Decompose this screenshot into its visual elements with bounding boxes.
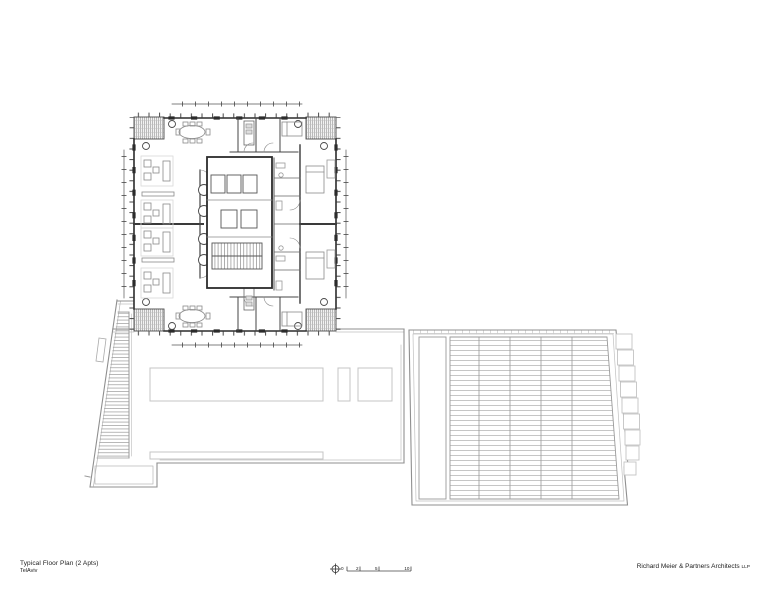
exterior-stair (97, 312, 132, 458)
terrace-bottom-right (306, 309, 336, 331)
tower-plan (122, 102, 349, 348)
wardrobe (327, 160, 335, 178)
scale-label-2: 2 (356, 566, 359, 571)
scale-label-10: 10 (404, 566, 410, 571)
scale-label-0: 0 (341, 566, 344, 571)
firm-name: Richard Meier & Partners Architects LLP (637, 563, 750, 570)
title-block: Typical Floor Plan (2 Apts) TelAviv (20, 560, 99, 575)
bed (306, 252, 324, 279)
drawing-sheet: 0 2 5 10 Typical Floor Plan (2 Apts) Tel… (0, 0, 780, 603)
wardrobe (327, 250, 335, 268)
console-table (142, 192, 174, 196)
dining-table-upper (176, 122, 210, 143)
scale-bar-group: 0 2 5 10 (330, 564, 411, 575)
roof-corridor-strip (419, 337, 446, 499)
bath-fixtures (276, 163, 285, 290)
roof-edge-cells (413, 331, 614, 335)
seating-group (141, 268, 173, 298)
terrace-top-left (134, 117, 164, 139)
console-table (142, 258, 174, 262)
service-core (207, 157, 272, 288)
podium-right-section (409, 330, 640, 505)
seating-group (141, 156, 173, 186)
seating-group (141, 228, 173, 256)
bed (306, 166, 324, 193)
sheet-title: Typical Floor Plan (2 Apts) (20, 560, 99, 568)
terrace-top-right (306, 117, 336, 139)
north-icon (330, 564, 341, 575)
scale-label-5: 5 (375, 566, 378, 571)
firm-name-text: Richard Meier & Partners Architects (637, 563, 740, 570)
core-stair (212, 243, 262, 269)
floor-plan-drawing: 0 2 5 10 (0, 0, 780, 603)
roof-openings (150, 368, 392, 459)
firm-suffix-text: LLP (741, 565, 750, 570)
terrace-bottom-left (134, 309, 164, 331)
louvred-roof (450, 337, 619, 499)
sheet-subtitle: TelAviv (20, 568, 99, 575)
dining-table-lower (176, 306, 210, 327)
